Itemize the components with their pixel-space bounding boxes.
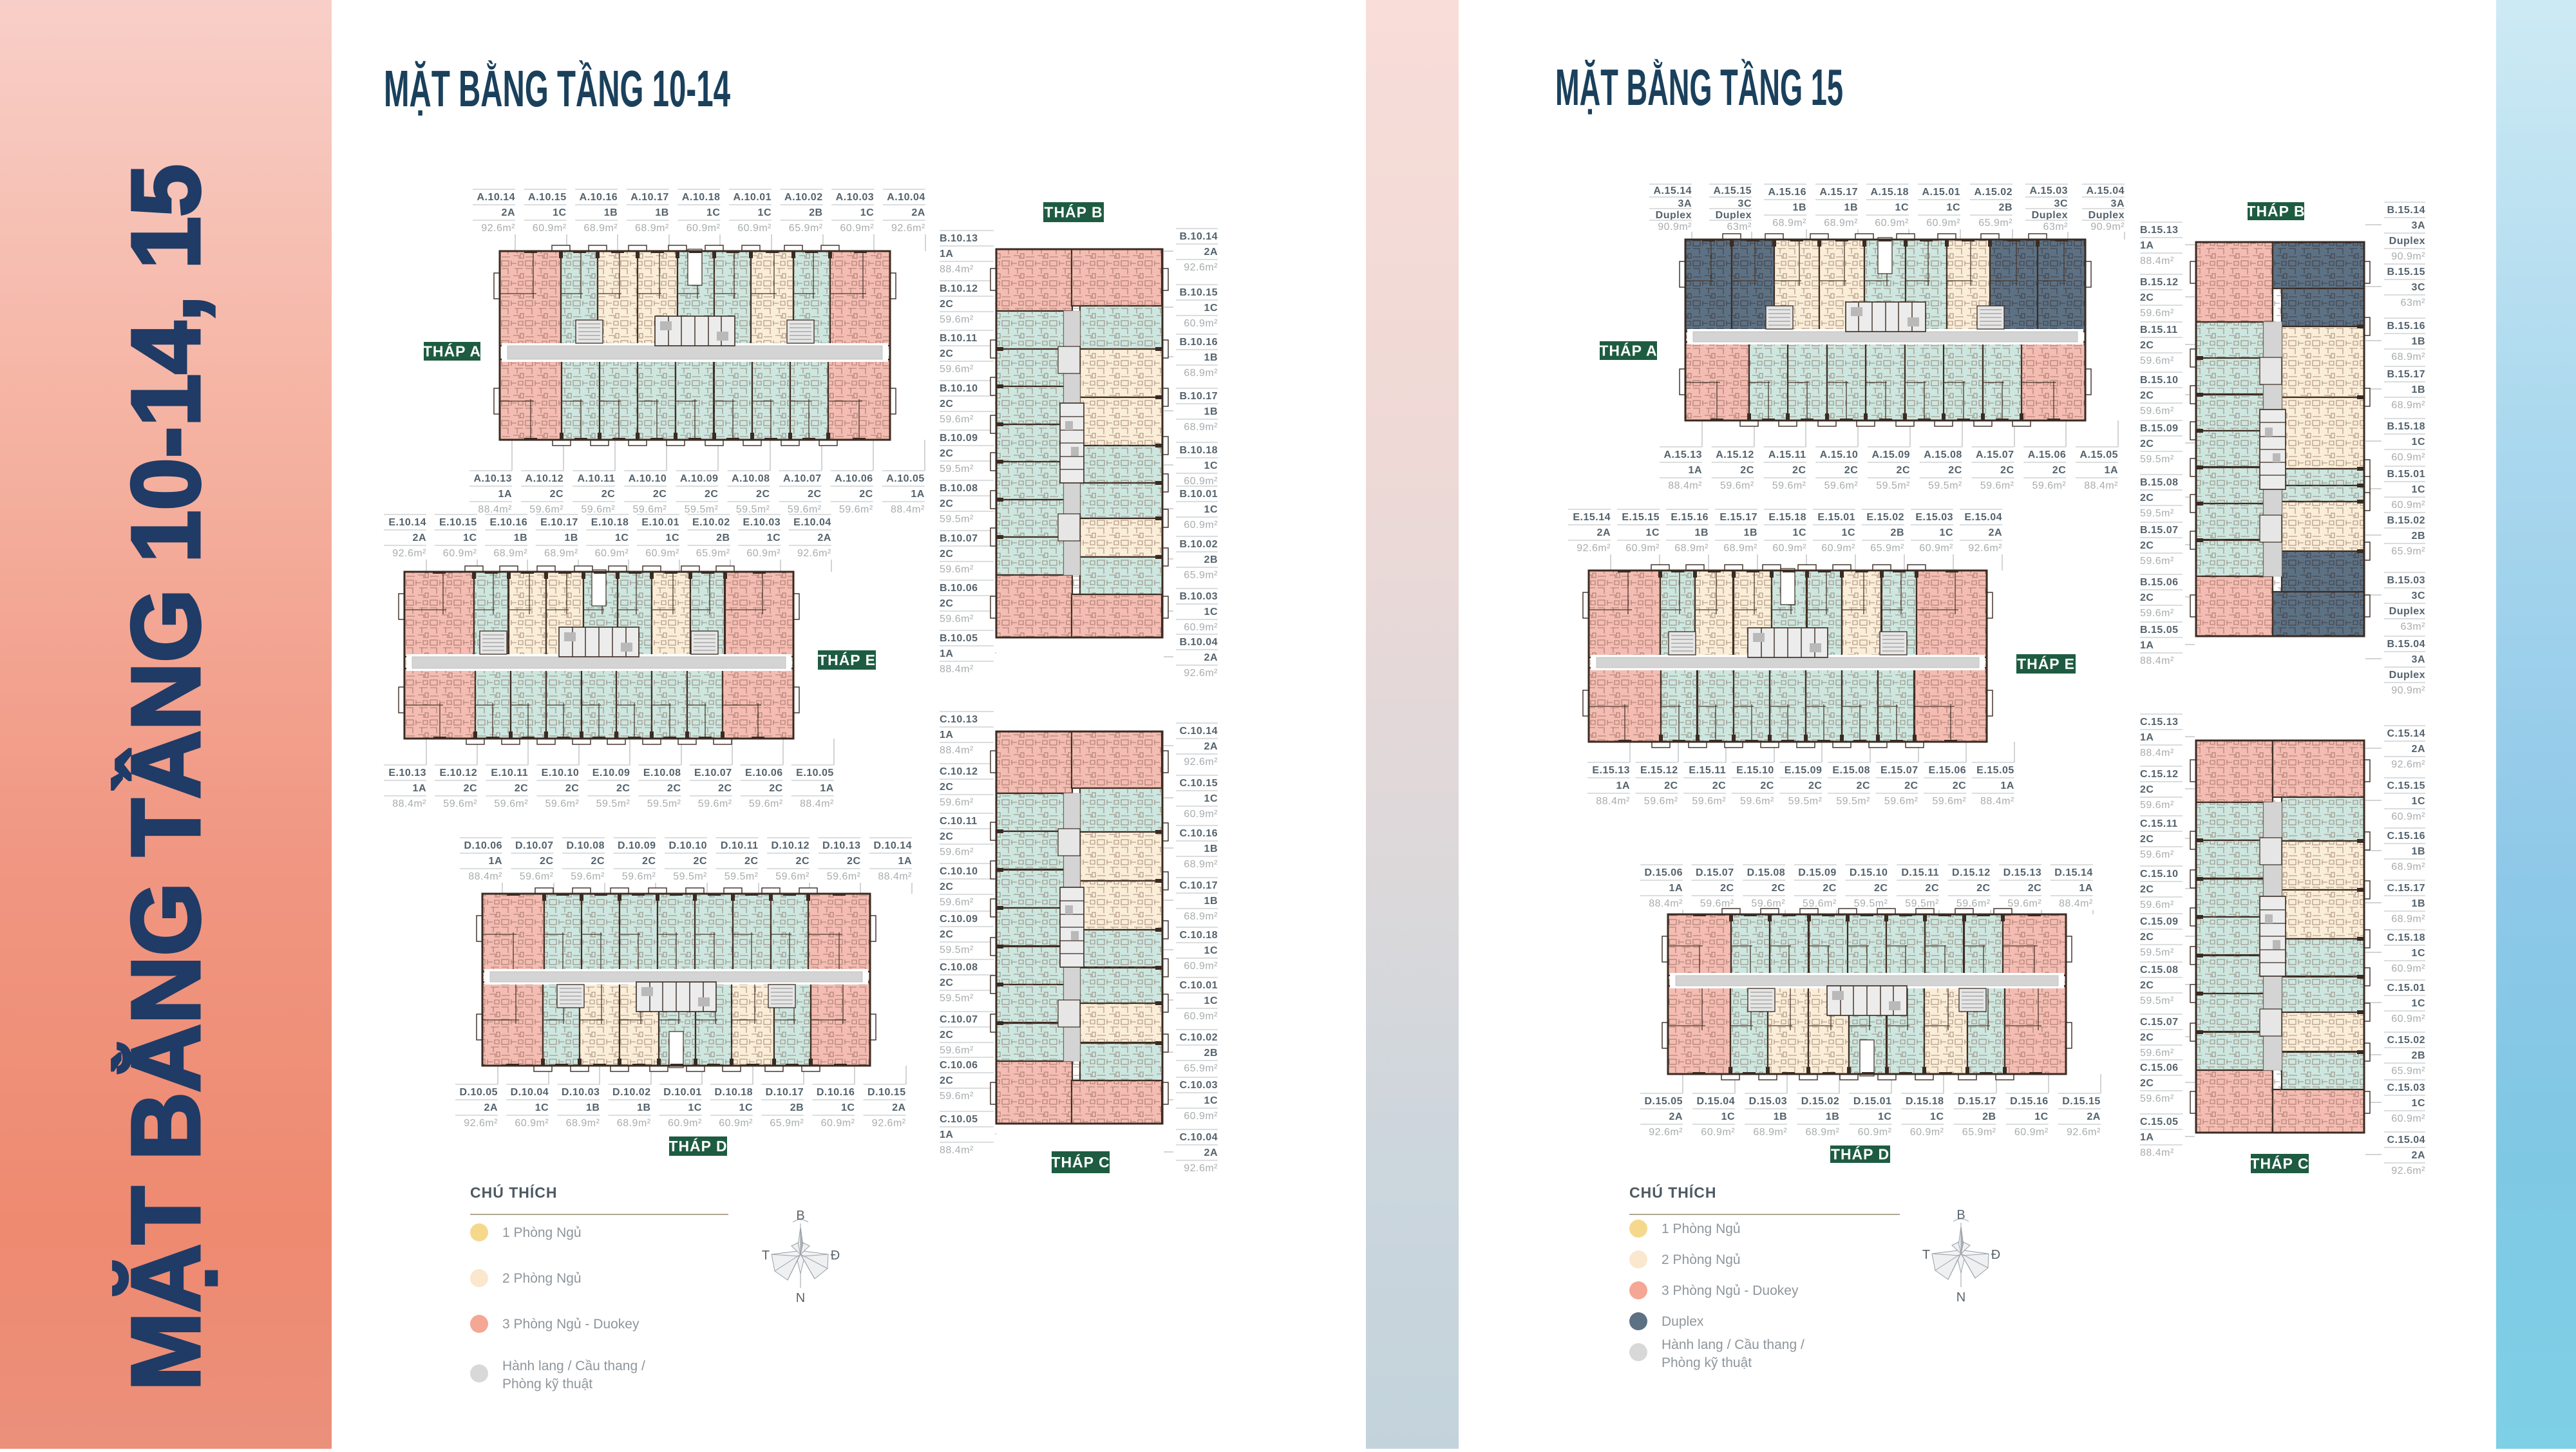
svg-text:60.9m²: 60.9m² xyxy=(687,223,721,234)
svg-text:1A: 1A xyxy=(940,249,953,259)
svg-text:2C: 2C xyxy=(940,549,953,560)
svg-text:B.10.06: B.10.06 xyxy=(940,583,978,594)
svg-text:A.10.13: A.10.13 xyxy=(473,473,512,484)
svg-text:2C: 2C xyxy=(940,598,953,609)
svg-text:59.6m²: 59.6m² xyxy=(545,798,580,809)
svg-text:2C: 2C xyxy=(940,498,953,509)
svg-text:D.10.05: D.10.05 xyxy=(459,1087,498,1098)
svg-text:Duplex: Duplex xyxy=(1662,1314,1704,1329)
svg-text:E.10.14: E.10.14 xyxy=(388,517,426,528)
svg-text:E.10.09: E.10.09 xyxy=(592,768,630,778)
svg-text:60.9m²: 60.9m² xyxy=(2391,1014,2425,1024)
svg-text:59.5m²: 59.5m² xyxy=(940,993,974,1004)
svg-text:E.15.18: E.15.18 xyxy=(1768,512,1806,523)
svg-text:1A: 1A xyxy=(2000,780,2014,791)
svg-text:2C: 2C xyxy=(940,882,953,892)
svg-text:A.10.18: A.10.18 xyxy=(682,192,721,203)
svg-text:65.9m²: 65.9m² xyxy=(789,223,823,234)
svg-text:60.9m²: 60.9m² xyxy=(668,1118,702,1129)
svg-text:1A: 1A xyxy=(2140,640,2154,651)
svg-text:68.9m²: 68.9m² xyxy=(1753,1127,1787,1138)
svg-text:MẶT BẰNG TẦNG 10-14, 15: MẶT BẰNG TẦNG 10-14, 15 xyxy=(111,164,220,1391)
svg-text:1C: 1C xyxy=(1930,1111,1944,1122)
svg-text:68.9m²: 68.9m² xyxy=(1184,368,1218,379)
svg-text:B.15.05: B.15.05 xyxy=(2140,625,2179,636)
svg-text:1C: 1C xyxy=(1204,995,1218,1006)
svg-text:60.9m²: 60.9m² xyxy=(1184,622,1218,633)
svg-text:THÁP D: THÁP D xyxy=(1831,1146,1889,1163)
svg-text:B.10.15: B.10.15 xyxy=(1179,287,1218,298)
svg-text:1C: 1C xyxy=(1878,1111,1891,1122)
svg-text:B.10.03: B.10.03 xyxy=(1179,591,1218,602)
svg-text:B: B xyxy=(1956,1208,1965,1222)
svg-text:1C: 1C xyxy=(2412,437,2425,448)
svg-text:1C: 1C xyxy=(1940,527,1953,538)
svg-text:1C: 1C xyxy=(860,207,874,218)
svg-text:A.15.16: A.15.16 xyxy=(1768,187,1806,198)
svg-text:60.9m²: 60.9m² xyxy=(1926,218,1960,229)
svg-text:2C: 2C xyxy=(550,489,563,500)
svg-text:2C: 2C xyxy=(616,783,630,794)
svg-text:60.9m²: 60.9m² xyxy=(1875,218,1909,229)
svg-text:68.9m²: 68.9m² xyxy=(583,223,618,234)
svg-text:2C: 2C xyxy=(1823,883,1836,894)
svg-text:88.4m²: 88.4m² xyxy=(800,798,834,809)
svg-text:59.6m²: 59.6m² xyxy=(940,797,974,808)
svg-text:C.15.02: C.15.02 xyxy=(2387,1035,2425,1046)
svg-text:B.10.18: B.10.18 xyxy=(1179,445,1218,456)
svg-text:C.15.11: C.15.11 xyxy=(2140,818,2178,829)
svg-text:1C: 1C xyxy=(615,533,629,543)
svg-text:Hành lang / Cầu thang /: Hành lang / Cầu thang / xyxy=(1662,1337,1804,1352)
svg-text:2C: 2C xyxy=(591,856,605,867)
svg-text:59.5m²: 59.5m² xyxy=(940,464,974,475)
svg-text:C.10.16: C.10.16 xyxy=(1179,828,1218,839)
svg-text:1B: 1B xyxy=(1774,1111,1787,1122)
svg-text:1B: 1B xyxy=(2412,336,2425,347)
svg-text:63m²: 63m² xyxy=(2401,621,2426,632)
svg-text:60.9m²: 60.9m² xyxy=(1184,961,1218,972)
svg-text:D.10.01: D.10.01 xyxy=(663,1087,702,1098)
svg-text:68.9m²: 68.9m² xyxy=(566,1118,600,1129)
svg-text:2C: 2C xyxy=(464,783,477,794)
svg-text:68.9m²: 68.9m² xyxy=(2391,352,2425,363)
svg-text:88.4m²: 88.4m² xyxy=(478,504,512,515)
svg-text:2C: 2C xyxy=(653,489,667,500)
svg-text:88.4m²: 88.4m² xyxy=(2084,480,2118,491)
svg-text:60.9m²: 60.9m² xyxy=(2391,500,2425,511)
svg-text:2A: 2A xyxy=(817,533,831,543)
svg-text:60.9m²: 60.9m² xyxy=(533,223,567,234)
svg-text:C.10.10: C.10.10 xyxy=(940,866,978,877)
svg-text:59.6m²: 59.6m² xyxy=(940,897,974,908)
svg-text:60.9m²: 60.9m² xyxy=(2391,963,2425,974)
svg-text:1B: 1B xyxy=(655,207,668,218)
svg-text:3 Phòng Ngủ - Duokey: 3 Phòng Ngủ - Duokey xyxy=(1662,1283,1799,1298)
svg-text:THÁP C: THÁP C xyxy=(1051,1153,1110,1171)
svg-text:2C: 2C xyxy=(2140,340,2154,351)
svg-text:68.9m²: 68.9m² xyxy=(2391,914,2425,925)
svg-text:1C: 1C xyxy=(1842,527,1855,538)
svg-text:T: T xyxy=(762,1249,770,1263)
svg-text:1A: 1A xyxy=(498,489,512,500)
svg-text:C.15.04: C.15.04 xyxy=(2387,1135,2425,1146)
svg-text:59.6m²: 59.6m² xyxy=(2140,308,2174,319)
svg-text:THÁP A: THÁP A xyxy=(423,343,481,360)
svg-text:2C: 2C xyxy=(1926,883,1939,894)
svg-text:92.6m²: 92.6m² xyxy=(1184,668,1218,679)
svg-text:THÁP A: THÁP A xyxy=(1599,342,1657,359)
svg-text:59.6m²: 59.6m² xyxy=(827,871,861,882)
svg-text:B: B xyxy=(796,1209,804,1223)
svg-text:1C: 1C xyxy=(1895,202,1909,213)
svg-text:2C: 2C xyxy=(2140,834,2154,845)
svg-text:68.9m²: 68.9m² xyxy=(617,1118,651,1129)
svg-text:59.6m²: 59.6m² xyxy=(1884,796,1918,807)
svg-text:E.10.12: E.10.12 xyxy=(439,768,477,778)
svg-text:68.9m²: 68.9m² xyxy=(2391,862,2425,872)
svg-text:59.6m²: 59.6m² xyxy=(1824,480,1858,491)
svg-text:CHÚ THÍCH: CHÚ THÍCH xyxy=(1629,1183,1717,1201)
svg-text:1C: 1C xyxy=(1204,793,1218,804)
svg-text:C.10.02: C.10.02 xyxy=(1179,1032,1218,1043)
svg-text:59.6m²: 59.6m² xyxy=(571,871,605,882)
svg-text:THÁP C: THÁP C xyxy=(2250,1155,2309,1172)
svg-text:1A: 1A xyxy=(911,489,924,500)
svg-text:2C: 2C xyxy=(940,831,953,842)
svg-text:3C: 3C xyxy=(1738,198,1752,209)
svg-text:D.10.04: D.10.04 xyxy=(511,1087,549,1098)
svg-text:2C: 2C xyxy=(705,489,718,500)
svg-text:1B: 1B xyxy=(1695,527,1709,538)
svg-text:2C: 2C xyxy=(769,783,782,794)
svg-text:60.9m²: 60.9m² xyxy=(1919,543,1953,554)
svg-text:88.4m²: 88.4m² xyxy=(392,798,426,809)
svg-text:D.15.06: D.15.06 xyxy=(1644,867,1683,878)
svg-text:Phòng kỹ thuật: Phòng kỹ thuật xyxy=(502,1377,592,1391)
svg-text:Duplex: Duplex xyxy=(2389,236,2425,247)
svg-text:60.9m²: 60.9m² xyxy=(2391,811,2425,822)
svg-text:68.9m²: 68.9m² xyxy=(1824,218,1858,229)
svg-text:1C: 1C xyxy=(1204,945,1218,956)
svg-text:2C: 2C xyxy=(940,1030,953,1041)
svg-text:2C: 2C xyxy=(940,448,953,459)
svg-text:1A: 1A xyxy=(2140,732,2154,743)
svg-text:E.10.17: E.10.17 xyxy=(540,517,578,528)
svg-text:1C: 1C xyxy=(739,1102,753,1113)
svg-text:2C: 2C xyxy=(2140,390,2154,401)
svg-text:D.15.12: D.15.12 xyxy=(1952,867,1991,878)
svg-text:2A: 2A xyxy=(1204,247,1218,258)
svg-text:A.10.03: A.10.03 xyxy=(836,192,875,203)
svg-text:2C: 2C xyxy=(694,856,707,867)
svg-text:92.6m²: 92.6m² xyxy=(872,1118,906,1129)
svg-text:C.15.12: C.15.12 xyxy=(2140,769,2179,780)
svg-text:Duplex: Duplex xyxy=(2032,210,2068,221)
svg-text:E.10.07: E.10.07 xyxy=(694,768,732,778)
svg-text:65.9m²: 65.9m² xyxy=(1870,543,1904,554)
svg-text:59.6m²: 59.6m² xyxy=(2140,1093,2174,1104)
svg-text:68.9m²: 68.9m² xyxy=(635,223,669,234)
svg-text:E.15.07: E.15.07 xyxy=(1880,765,1918,776)
svg-text:59.6m²: 59.6m² xyxy=(749,798,783,809)
svg-text:59.5m²: 59.5m² xyxy=(736,504,770,515)
svg-text:3 Phòng Ngủ - Duokey: 3 Phòng Ngủ - Duokey xyxy=(502,1317,639,1332)
svg-text:E.15.10: E.15.10 xyxy=(1736,765,1774,776)
svg-text:1C: 1C xyxy=(2412,998,2425,1009)
svg-text:2C: 2C xyxy=(940,348,953,359)
svg-text:59.6m²: 59.6m² xyxy=(940,414,974,425)
svg-text:68.9m²: 68.9m² xyxy=(1674,543,1709,554)
svg-text:B.10.05: B.10.05 xyxy=(940,633,978,644)
svg-text:2C: 2C xyxy=(940,1075,953,1086)
svg-text:D.10.02: D.10.02 xyxy=(612,1087,651,1098)
svg-text:59.6m²: 59.6m² xyxy=(2140,800,2174,811)
svg-text:D.10.06: D.10.06 xyxy=(464,840,502,851)
svg-text:1A: 1A xyxy=(940,1129,953,1140)
svg-text:1B: 1B xyxy=(1793,202,1806,213)
svg-text:1C: 1C xyxy=(553,207,566,218)
svg-text:59.6m²: 59.6m² xyxy=(788,504,822,515)
svg-text:60.9m²: 60.9m² xyxy=(2391,1113,2425,1124)
svg-text:59.6m²: 59.6m² xyxy=(940,364,974,375)
svg-text:C.10.15: C.10.15 xyxy=(1179,778,1218,789)
svg-text:59.6m²: 59.6m² xyxy=(940,1091,974,1102)
svg-text:60.9m²: 60.9m² xyxy=(821,1118,855,1129)
svg-text:2C: 2C xyxy=(2140,980,2154,991)
svg-text:B.10.07: B.10.07 xyxy=(940,533,978,544)
svg-text:59.5m²: 59.5m² xyxy=(2140,508,2174,519)
svg-text:65.9m²: 65.9m² xyxy=(696,548,730,559)
svg-text:68.9m²: 68.9m² xyxy=(1184,859,1218,870)
svg-text:A.15.03: A.15.03 xyxy=(2029,185,2068,196)
svg-text:59.6m²: 59.6m² xyxy=(633,504,667,515)
svg-text:A.10.16: A.10.16 xyxy=(580,192,618,203)
svg-text:D.10.13: D.10.13 xyxy=(822,840,861,851)
svg-text:1C: 1C xyxy=(463,533,477,543)
svg-text:60.9m²: 60.9m² xyxy=(1821,543,1855,554)
svg-text:E.15.02: E.15.02 xyxy=(1866,512,1904,523)
svg-text:88.4m²: 88.4m² xyxy=(1649,898,1683,909)
svg-text:92.6m²: 92.6m² xyxy=(464,1118,498,1129)
svg-text:1B: 1B xyxy=(564,533,578,543)
svg-text:1C: 1C xyxy=(2412,1098,2425,1109)
svg-text:59.6m²: 59.6m² xyxy=(2140,849,2174,860)
svg-text:2C: 2C xyxy=(756,489,770,500)
svg-text:2A: 2A xyxy=(1669,1111,1683,1122)
svg-text:C.10.09: C.10.09 xyxy=(940,914,978,925)
svg-text:MẶT BẰNG TẦNG 15: MẶT BẰNG TẦNG 15 xyxy=(1555,59,1843,116)
svg-text:2A: 2A xyxy=(1204,1147,1218,1158)
svg-text:1C: 1C xyxy=(535,1102,549,1113)
svg-text:3C: 3C xyxy=(2412,282,2425,293)
svg-text:2C: 2C xyxy=(2140,438,2154,449)
svg-text:B.15.01: B.15.01 xyxy=(2387,469,2425,480)
svg-text:C.15.13: C.15.13 xyxy=(2140,717,2179,728)
svg-text:59.6m²: 59.6m² xyxy=(775,871,810,882)
svg-text:2C: 2C xyxy=(2052,465,2066,476)
svg-text:E.15.03: E.15.03 xyxy=(1915,512,1953,523)
svg-text:59.5m²: 59.5m² xyxy=(1788,796,1823,807)
svg-text:88.4m²: 88.4m² xyxy=(940,1145,974,1156)
svg-text:1B: 1B xyxy=(2412,846,2425,857)
svg-text:C.10.05: C.10.05 xyxy=(940,1114,978,1125)
svg-text:2A: 2A xyxy=(1597,527,1611,538)
svg-text:C.15.09: C.15.09 xyxy=(2140,916,2179,927)
svg-text:60.9m²: 60.9m² xyxy=(1772,543,1806,554)
svg-text:1C: 1C xyxy=(1793,527,1806,538)
svg-text:88.4m²: 88.4m² xyxy=(1668,480,1702,491)
svg-text:Duplex: Duplex xyxy=(1716,210,1752,221)
svg-text:60.9m²: 60.9m² xyxy=(2014,1127,2049,1138)
svg-text:1C: 1C xyxy=(2034,1111,2048,1122)
svg-text:T: T xyxy=(1922,1248,1930,1262)
svg-text:1B: 1B xyxy=(1844,202,1858,213)
svg-text:Duplex: Duplex xyxy=(2389,606,2425,617)
svg-text:A.15.18: A.15.18 xyxy=(1870,187,1909,198)
svg-text:63m²: 63m² xyxy=(2401,297,2426,308)
svg-text:2A: 2A xyxy=(911,207,925,218)
svg-text:59.6m²: 59.6m² xyxy=(940,1045,974,1056)
svg-text:1C: 1C xyxy=(1204,460,1218,471)
svg-text:A.15.13: A.15.13 xyxy=(1663,449,1702,460)
svg-text:59.6m²: 59.6m² xyxy=(940,314,974,325)
svg-text:59.6m²: 59.6m² xyxy=(940,564,974,575)
svg-text:D.10.09: D.10.09 xyxy=(618,840,656,851)
svg-text:1B: 1B xyxy=(1204,896,1218,907)
svg-text:A.15.01: A.15.01 xyxy=(1922,187,1960,198)
svg-text:60.9m²: 60.9m² xyxy=(1625,543,1660,554)
svg-text:1B: 1B xyxy=(637,1102,650,1113)
svg-text:1C: 1C xyxy=(2412,796,2425,807)
svg-text:65.9m²: 65.9m² xyxy=(770,1118,804,1129)
svg-text:3A: 3A xyxy=(2111,198,2125,209)
svg-text:59.6m²: 59.6m² xyxy=(1692,796,1726,807)
svg-text:59.5m²: 59.5m² xyxy=(1905,898,1939,909)
svg-text:2B: 2B xyxy=(1204,1048,1218,1059)
svg-text:63m²: 63m² xyxy=(1727,222,1752,232)
svg-text:A.15.04: A.15.04 xyxy=(2086,185,2125,196)
svg-text:B.15.14: B.15.14 xyxy=(2387,205,2425,216)
svg-text:2C: 2C xyxy=(2140,292,2154,303)
svg-text:1C: 1C xyxy=(1204,1095,1218,1106)
svg-text:59.6m²: 59.6m² xyxy=(2007,898,2041,909)
svg-text:59.5m²: 59.5m² xyxy=(940,945,974,956)
svg-text:2C: 2C xyxy=(1953,780,1966,791)
svg-text:60.9m²: 60.9m² xyxy=(443,548,477,559)
svg-text:59.5m²: 59.5m² xyxy=(647,798,681,809)
svg-text:1A: 1A xyxy=(2079,883,2092,894)
svg-text:88.4m²: 88.4m² xyxy=(2140,748,2174,759)
svg-text:C.15.06: C.15.06 xyxy=(2140,1062,2179,1073)
svg-text:C.15.17: C.15.17 xyxy=(2387,883,2425,894)
svg-text:D.15.18: D.15.18 xyxy=(1906,1096,1944,1107)
svg-text:2C: 2C xyxy=(1772,883,1785,894)
svg-text:2A: 2A xyxy=(502,207,515,218)
svg-text:59.5m²: 59.5m² xyxy=(596,798,630,809)
svg-text:E.15.13: E.15.13 xyxy=(1592,765,1630,776)
svg-text:B.10.04: B.10.04 xyxy=(1179,637,1218,648)
svg-text:60.9m²: 60.9m² xyxy=(1184,318,1218,329)
svg-text:60.9m²: 60.9m² xyxy=(1184,1111,1218,1122)
svg-text:60.9m²: 60.9m² xyxy=(737,223,772,234)
svg-text:2C: 2C xyxy=(796,856,810,867)
svg-text:C.15.15: C.15.15 xyxy=(2387,780,2425,791)
svg-text:2C: 2C xyxy=(667,783,681,794)
svg-text:A.10.12: A.10.12 xyxy=(526,473,564,484)
svg-text:A.15.15: A.15.15 xyxy=(1713,185,1752,196)
svg-text:59.6m²: 59.6m² xyxy=(443,798,477,809)
svg-text:68.9m²: 68.9m² xyxy=(1184,422,1218,433)
svg-text:B.15.03: B.15.03 xyxy=(2387,575,2425,586)
svg-text:A.15.11: A.15.11 xyxy=(1768,449,1806,460)
svg-text:2C: 2C xyxy=(2000,465,2014,476)
svg-text:92.6m²: 92.6m² xyxy=(392,548,426,559)
svg-text:88.4m²: 88.4m² xyxy=(940,745,974,756)
svg-text:68.9m²: 68.9m² xyxy=(544,548,578,559)
svg-text:2C: 2C xyxy=(2140,1078,2154,1089)
svg-text:65.9m²: 65.9m² xyxy=(1962,1127,1996,1138)
svg-text:E.15.15: E.15.15 xyxy=(1622,512,1660,523)
svg-text:2C: 2C xyxy=(1740,465,1754,476)
svg-text:59.5m²: 59.5m² xyxy=(2140,995,2174,1006)
svg-text:B.10.01: B.10.01 xyxy=(1179,489,1218,500)
svg-text:E.15.16: E.15.16 xyxy=(1671,512,1709,523)
svg-text:A.10.07: A.10.07 xyxy=(783,473,822,484)
svg-text:E.15.06: E.15.06 xyxy=(1929,765,1967,776)
svg-text:2B: 2B xyxy=(1999,202,2012,213)
svg-text:2C: 2C xyxy=(940,399,953,410)
svg-text:2C: 2C xyxy=(565,783,579,794)
svg-text:A.10.06: A.10.06 xyxy=(835,473,873,484)
svg-text:2C: 2C xyxy=(859,489,873,500)
svg-text:E.10.03: E.10.03 xyxy=(743,517,781,528)
svg-text:59.6m²: 59.6m² xyxy=(2140,900,2174,910)
svg-text:Duplex: Duplex xyxy=(1656,210,1692,221)
svg-text:E.15.14: E.15.14 xyxy=(1573,512,1611,523)
svg-text:1B: 1B xyxy=(1204,406,1218,417)
svg-text:88.4m²: 88.4m² xyxy=(940,264,974,275)
svg-text:B.15.17: B.15.17 xyxy=(2387,369,2425,380)
svg-text:1C: 1C xyxy=(1204,504,1218,515)
svg-text:60.9m²: 60.9m² xyxy=(515,1118,549,1129)
svg-text:THÁP B: THÁP B xyxy=(2246,202,2305,220)
svg-text:65.9m²: 65.9m² xyxy=(2391,546,2425,557)
svg-text:59.6m²: 59.6m² xyxy=(1956,898,1991,909)
svg-text:59.6m²: 59.6m² xyxy=(1700,898,1734,909)
svg-text:D.10.07: D.10.07 xyxy=(515,840,554,851)
svg-text:N: N xyxy=(796,1291,805,1305)
svg-text:A.10.15: A.10.15 xyxy=(528,192,567,203)
svg-text:90.9m²: 90.9m² xyxy=(1658,222,1692,232)
svg-text:65.9m²: 65.9m² xyxy=(2391,1066,2425,1077)
svg-text:59.6m²: 59.6m² xyxy=(1772,480,1806,491)
svg-text:2 Phòng Ngủ: 2 Phòng Ngủ xyxy=(502,1271,582,1286)
svg-text:2B: 2B xyxy=(809,207,822,218)
svg-text:2A: 2A xyxy=(2412,1150,2425,1161)
svg-text:88.4m²: 88.4m² xyxy=(2140,256,2174,267)
svg-text:59.6m²: 59.6m² xyxy=(581,504,615,515)
svg-text:1A: 1A xyxy=(898,856,912,867)
svg-text:59.6m²: 59.6m² xyxy=(940,847,974,858)
svg-text:2C: 2C xyxy=(940,782,953,793)
svg-text:B.15.13: B.15.13 xyxy=(2140,225,2179,236)
svg-text:E.10.10: E.10.10 xyxy=(542,768,580,778)
svg-text:THÁP E: THÁP E xyxy=(2017,655,2075,672)
svg-text:59.6m²: 59.6m² xyxy=(839,504,873,515)
svg-text:C.10.18: C.10.18 xyxy=(1179,930,1218,941)
svg-text:1 Phòng Ngủ: 1 Phòng Ngủ xyxy=(502,1225,582,1240)
